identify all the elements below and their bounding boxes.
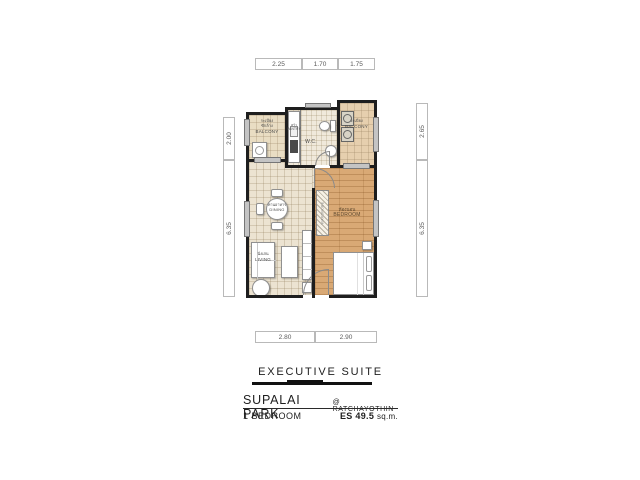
washing-machine [252,142,267,158]
dim-right-2: 6.35 [416,160,428,297]
counter-cabinet [302,230,312,280]
wc-door-leaf [329,151,330,166]
ac-fan [343,130,352,139]
dim-right-2-value: 6.35 [419,222,426,235]
wardrobe-label-text: WARDROBE [321,202,325,225]
sliding-door-balcony-left [254,157,281,163]
pantry-counter [288,111,300,163]
stove [290,140,298,153]
dim-left-1: 2.00 [223,117,235,160]
dim-top-2: 1.70 [302,58,338,70]
area-unit: sq.m. [377,412,398,421]
dining-chair [271,222,283,230]
wall-segment [312,188,315,298]
scale-bar-segment [287,380,323,385]
bed-sheet-line [363,253,364,296]
suite-name: EXECUTIVE SUITE [243,366,398,378]
window-wc [305,103,331,108]
bedroom-name: BEDROOM [327,212,367,218]
balcony-right-name: BALCONY [341,124,372,129]
room-label-balcony-left: ระเบียง ซักล้าง BALCONY [250,119,284,134]
room-label-wc: W.C. [302,139,320,145]
room-label-balcony-right: ระเบียง BALCONY [341,119,372,129]
wall-segment [330,165,340,168]
unit-type: 1 BEDROOM [243,411,302,421]
bed-sheet-line [357,253,358,296]
wall-segment [246,295,303,298]
window-bedroom [373,200,379,237]
dim-left-2-value: 6.35 [226,222,233,235]
wc-name: W.C. [302,139,320,145]
area-code: ES [340,411,353,421]
title-divider [243,408,398,409]
dim-right-1: 2.65 [416,103,428,160]
dim-top-1: 2.25 [255,58,302,70]
scale-bar-segment [323,382,372,385]
area-value: 49.5 [355,411,374,421]
room-label-pantry: ครัว PANTRY [287,124,301,132]
wall-segment [337,100,340,168]
washing-machine-drum [255,146,264,155]
ac-condenser-unit [341,127,354,142]
bed [333,252,374,295]
room-label-living: นั่งเล่น LIVING [251,252,275,262]
tv-cabinet [281,246,298,278]
dim-left-2: 6.35 [223,160,235,297]
toilet-tank [330,120,336,132]
dim-bottom-1: 2.80 [255,331,315,343]
pantry-name: PANTRY [287,128,301,132]
wall-segment [329,295,377,298]
room-label-dining: ทานอาหาร DINING [264,203,290,212]
wall-segment [285,165,315,168]
partition-line [300,110,301,165]
unit-line: 1 BEDROOM ES 49.5 sq.m. [243,411,398,421]
scale-bar-segment [252,382,287,385]
pillow [366,275,372,291]
dim-left-1-value: 2.00 [226,132,233,145]
pillow [366,256,372,272]
living-name: LIVING [251,257,275,262]
room-label-bedroom: ห้องนอน BEDROOM [327,207,367,218]
dim-bottom-2: 2.90 [315,331,377,343]
wall-segment [337,100,377,103]
sliding-door-balcony-right [343,163,370,169]
window-living [244,201,250,237]
bedside-table [362,241,372,250]
dining-chair [256,203,264,215]
toilet-bowl [319,121,330,131]
entrance-door-leaf [328,269,329,295]
dining-name: DINING [264,208,290,213]
dim-top-3: 1.75 [338,58,375,70]
window-balcony-right [373,117,379,152]
floor-plan-page: 2.25 1.70 1.75 2.00 6.35 2.65 6.35 2.80 … [0,0,640,480]
dim-right-1-value: 2.65 [419,125,426,138]
wall-segment [246,112,288,115]
unit-area: ES 49.5 sq.m. [340,411,398,421]
balcony-left-name: BALCONY [250,129,284,134]
bedroom-door-leaf [314,168,315,188]
dining-chair [271,189,283,197]
